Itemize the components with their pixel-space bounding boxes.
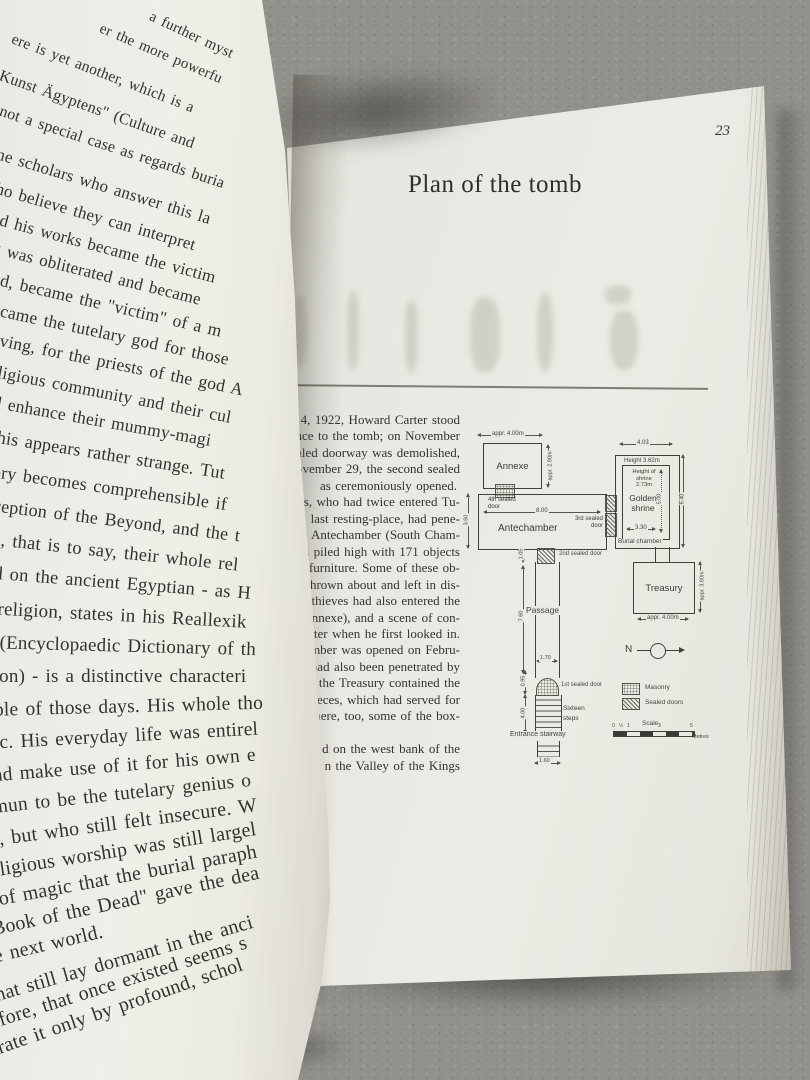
dimension-label: appr. 3.80m (700, 570, 706, 601)
north-label: N (625, 644, 632, 656)
body-line: ers; the Treasury contained the (296, 676, 460, 689)
room-label: Annexe (484, 444, 541, 488)
tomb-plan-diagram: appr. 4.00m Annexe appr. 2.90m 4th seale… (465, 430, 715, 780)
room-label: Burial chamber (617, 539, 663, 546)
door-label-line: 3rd sealed (575, 516, 603, 522)
body-text-column: ber 4, 1922, Howard Carter stood ance to… (300, 413, 460, 793)
book-text-line: f religion, states in his Reallexik (0, 598, 247, 634)
page-showthrough (605, 285, 631, 305)
page-showthrough (537, 293, 553, 371)
book-text-line: ople of those days. His whole tho (0, 693, 263, 722)
door-label: 3rd sealeddoor (569, 516, 603, 530)
room-label: Passage (525, 606, 560, 615)
page-showthrough (347, 290, 359, 370)
body-line: 's last resting-place, had pene- (299, 512, 460, 525)
page-number: 23 (715, 123, 730, 140)
body-line: as ceremoniously opened. (320, 479, 457, 492)
scale-bar (613, 731, 695, 737)
room-treasury: Treasury (633, 562, 695, 614)
room-label: Entrance stairway (509, 731, 567, 738)
room-label: Antechamber (498, 523, 557, 535)
label-line: shrine (636, 476, 652, 482)
dimension-label: 1.60 (538, 759, 551, 765)
body-line: en thrown about and left in dis- (290, 578, 460, 591)
right-page: 23 Plan of the tomb ber 4, 1922, Howard … (275, 85, 795, 990)
body-line: he Antechamber (South Cham- (295, 528, 460, 541)
book-text-line: gion) - is a distinctive characteri (0, 666, 246, 688)
door-label-line: 4th sealed (488, 497, 516, 503)
body-line: ovember 29, the second sealed (296, 462, 460, 475)
dimension-label: appr. 4.00m (646, 615, 680, 621)
page-showthrough (405, 300, 418, 372)
page-showthrough (610, 310, 638, 370)
dimension-label: 1.05 (518, 548, 524, 561)
dimension-label: 4.03 (636, 440, 650, 446)
body-line: ber 4, 1922, Howard Carter stood (280, 413, 460, 426)
label-line: 2.73m (636, 482, 652, 488)
legend-sealed-doors-swatch (622, 698, 640, 710)
room-label: Treasury (634, 563, 694, 613)
door-label-line: door (488, 504, 500, 510)
body-line: ers, who had twice entered Tu- (294, 495, 460, 508)
label-line: shrine (631, 503, 654, 513)
body-line: Carter when he first looked in. (295, 627, 460, 640)
dimension-label: 3.30 (634, 525, 648, 531)
body-line: sealed doorway was demolished, (285, 446, 460, 459)
dimension-label: 5.00 (656, 493, 662, 506)
page-showthrough (470, 297, 500, 372)
door-label: 1st sealed door (560, 682, 603, 688)
shrine-height-label: Height ofshrine2.73m (624, 469, 664, 489)
page-stack-fore-edge (747, 85, 793, 990)
label-line: Sixteen (563, 705, 585, 712)
book-text-line: e (Encyclopaedic Dictionary of th (0, 632, 256, 661)
scale-tick: 0 (611, 724, 616, 729)
dimension-label: 4.00 (520, 707, 526, 720)
door-label: 2nd sealed door (558, 551, 603, 557)
entrance-stairs-upper (535, 695, 562, 731)
body-line: ance to the tomb; on November (290, 429, 460, 442)
north-arrow-head (679, 647, 685, 653)
label-line: steps (563, 715, 579, 722)
door-label-line: door (591, 523, 603, 529)
scale-tick: 5 (689, 724, 694, 729)
corridor (655, 547, 670, 562)
dimension-label: appr. 2.90m (548, 450, 554, 481)
north-arrow-circle (650, 643, 666, 659)
body-line: thieves had also entered the (312, 594, 460, 607)
dimension-label: 1.70 (539, 656, 552, 662)
dimension-label: 0.95 (520, 675, 526, 688)
section-rule (280, 384, 708, 389)
door-label: 4th sealeddoor (488, 497, 516, 511)
steps-label: Sixteensteps (563, 704, 585, 724)
legend-label: Sealed doors (644, 700, 684, 707)
book-photo-scene: 23 Plan of the tomb ber 4, 1922, Howard … (0, 0, 810, 1080)
dimension-label: 6.40 (679, 493, 685, 506)
legend-label: Masonry (644, 685, 671, 692)
legend-masonry-swatch (622, 683, 640, 695)
label-line: Golden (629, 493, 656, 503)
dimension-label: 3.60 (463, 514, 469, 527)
body-line: of furniture. Some of these ob- (294, 561, 460, 574)
sealed-door-1 (536, 678, 559, 696)
body-line: was piled high with 171 objects (289, 545, 460, 558)
dimension-label: 7.60 (518, 610, 524, 623)
dimension-label: 8.00 (535, 508, 549, 514)
entrance-stairs-lower (537, 741, 560, 757)
height-label: Height 3.62m (623, 458, 661, 464)
scale-tick: ½ (618, 724, 624, 729)
room-annexe: Annexe (483, 443, 542, 489)
label-line: Height of (632, 469, 655, 475)
dimension-label: appr. 4.00m (491, 431, 525, 437)
scale-unit: Metres (691, 735, 710, 741)
scale-tick: 3 (657, 724, 662, 729)
scale-tick: 1 (626, 724, 631, 729)
chapter-title: Plan of the tomb (335, 171, 655, 199)
